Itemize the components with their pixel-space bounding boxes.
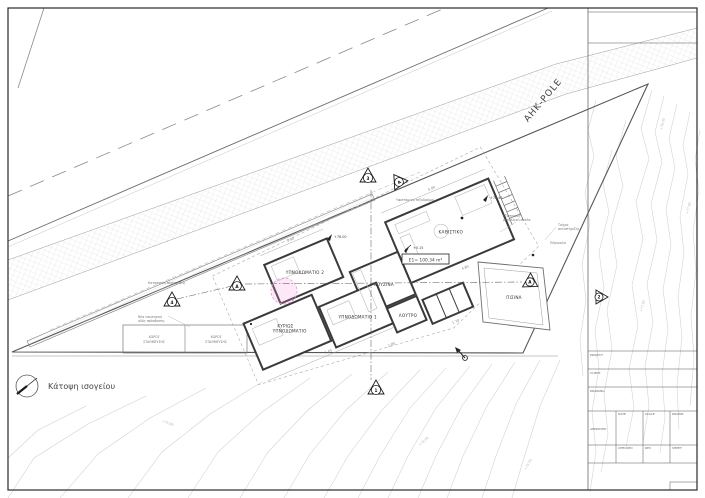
svg-text:2: 2 bbox=[598, 295, 601, 300]
ann-access-2: οδός πρόσβασης bbox=[138, 319, 165, 323]
tb-project: PROJECT bbox=[590, 353, 603, 357]
tb-drawing: DRAWING bbox=[590, 389, 605, 393]
tb-date: DATE bbox=[618, 412, 626, 416]
parking-label-2b: ΣΤΑΘΜΕΥΣΗΣ bbox=[205, 340, 227, 344]
pool: ΠΙΣΙΝΑ bbox=[478, 262, 550, 330]
caption-label: Κάτοψη ισογείου bbox=[48, 382, 115, 391]
ann-stair-2: μεταλλική σκάλα bbox=[503, 218, 531, 222]
ann-fence: Κατασκευή περίφραξης bbox=[148, 281, 185, 285]
ann-retaining-2: αντιστήριξης bbox=[558, 227, 580, 231]
plan-drawing: +76.50 +77.00 +77.50 +75.80 +76.00 +75.5… bbox=[0, 0, 705, 498]
floor-plan-sheet: +76.50 +77.00 +77.50 +75.80 +76.00 +75.5… bbox=[0, 0, 705, 498]
parking-label-2a: ΧΩΡΟΣ bbox=[210, 335, 221, 339]
bedroom2-label: ΥΠΝΟΔΩΜΑΤΙΟ 2 bbox=[285, 270, 324, 275]
tb-drawn: DRAWN bbox=[672, 412, 683, 416]
ann-pergola: Πέργκολα bbox=[550, 241, 566, 245]
tb-scale: SCALE bbox=[645, 412, 655, 416]
tb-approved: APPROVED bbox=[590, 427, 607, 431]
area-label: Ε1= 100.34 m² bbox=[409, 257, 443, 263]
bath-label: ΛΟΥΤΡΟ bbox=[399, 313, 418, 318]
tb-client: CLIENT bbox=[590, 371, 601, 375]
highlight-circle bbox=[271, 278, 297, 304]
tb-rev: REV bbox=[645, 446, 652, 450]
kitchen-label: ΚΟΥΖΙΝΑ bbox=[374, 282, 394, 287]
tb-sheet: SHEET bbox=[672, 446, 682, 450]
svg-text:1: 1 bbox=[375, 388, 378, 393]
svg-text:3: 3 bbox=[367, 176, 370, 181]
parking-label-1a: ΧΩΡΟΣ bbox=[148, 335, 159, 339]
ann-sidewalk: Υφιστάμενο πεζοδρόμιο bbox=[396, 198, 434, 202]
spot-level-1: +78.00 bbox=[334, 235, 347, 239]
spot-level-2: +78.45 bbox=[490, 196, 503, 200]
master-label-2: ΥΠΝΟΔΩΜΑΤΙΟ bbox=[272, 328, 307, 333]
parking-label-1b: ΣΤΑΘΜΕΥΣΗΣ bbox=[143, 340, 165, 344]
pool-label: ΠΙΣΙΝΑ bbox=[506, 295, 521, 300]
living-label: ΚΑΘΙΣΤΙΚΟ bbox=[439, 230, 464, 235]
tb-checked: CHECKED bbox=[618, 446, 633, 450]
svg-text:4: 4 bbox=[171, 300, 174, 305]
level-entry: +0.15 bbox=[413, 246, 423, 250]
